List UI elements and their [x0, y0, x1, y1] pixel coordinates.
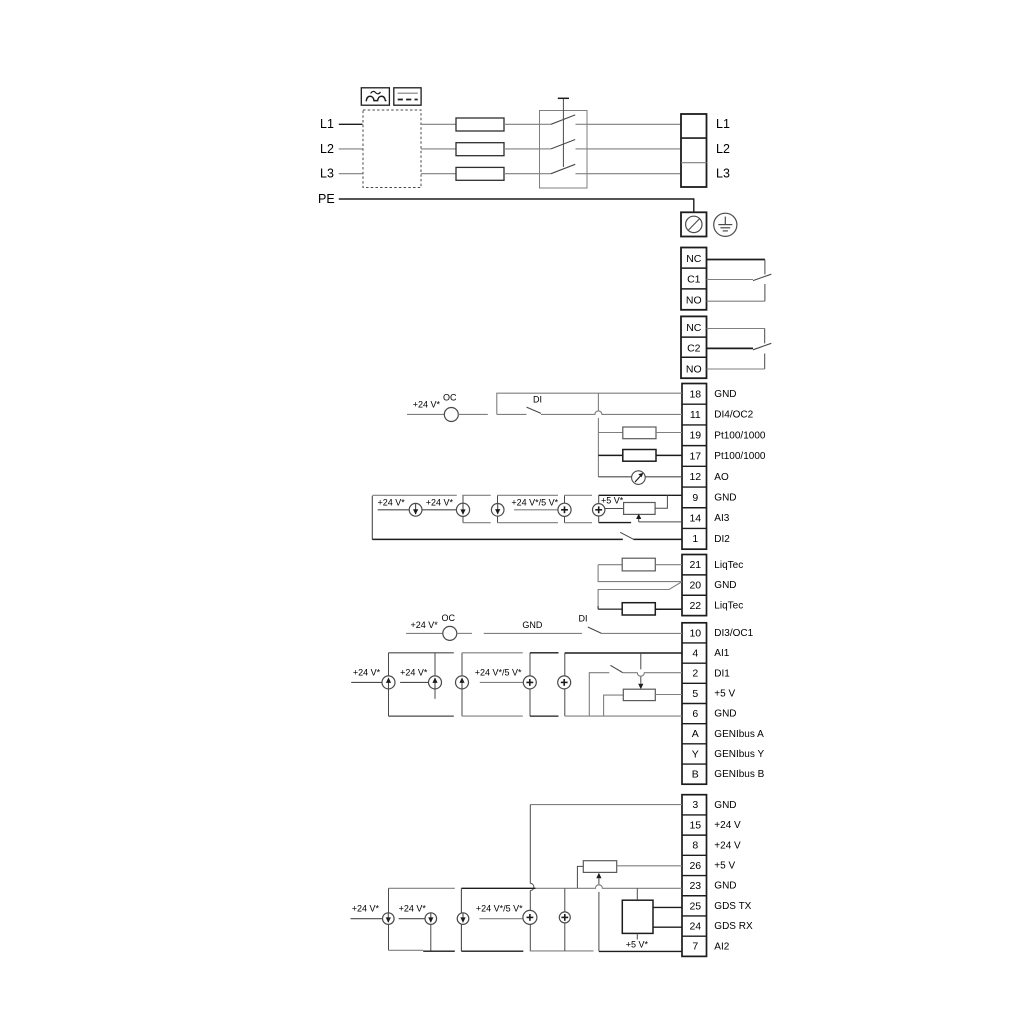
svg-text:DI3/OC1: DI3/OC1 [714, 628, 753, 639]
svg-text:3: 3 [692, 799, 698, 811]
svg-text:GND: GND [522, 620, 543, 630]
svg-text:AI3: AI3 [714, 513, 729, 524]
svg-text:26: 26 [689, 860, 701, 872]
svg-text:+24 V*: +24 V* [352, 904, 380, 914]
svg-text:+5 V: +5 V [714, 689, 735, 700]
svg-text:17: 17 [689, 450, 701, 462]
svg-text:Pt100/1000: Pt100/1000 [714, 430, 766, 441]
svg-text:AI2: AI2 [714, 941, 729, 952]
svg-text:7: 7 [692, 941, 698, 953]
svg-text:GND: GND [714, 709, 736, 720]
svg-text:2: 2 [692, 668, 698, 680]
svg-text:+24 V*: +24 V* [400, 668, 428, 678]
svg-text:25: 25 [689, 900, 701, 912]
svg-text:DI: DI [579, 613, 588, 623]
svg-text:GDS TX: GDS TX [714, 901, 751, 912]
svg-text:+5 V*: +5 V* [626, 940, 649, 950]
svg-text:C2: C2 [687, 342, 701, 354]
svg-text:+24 V: +24 V [714, 840, 741, 851]
svg-text:DI4/OC2: DI4/OC2 [714, 410, 753, 421]
svg-text:AI1: AI1 [714, 648, 729, 659]
svg-text:9: 9 [692, 492, 698, 504]
svg-text:18: 18 [689, 388, 701, 400]
svg-text:L1: L1 [320, 117, 334, 131]
svg-text:DI1: DI1 [714, 668, 730, 679]
svg-text:+24 V*/5 V*: +24 V*/5 V* [475, 668, 522, 678]
svg-text:NC: NC [686, 253, 702, 265]
svg-text:+5 V: +5 V [714, 861, 735, 872]
svg-text:L1: L1 [716, 117, 730, 131]
svg-text:20: 20 [689, 579, 701, 591]
svg-text:23: 23 [689, 880, 701, 892]
svg-text:+24 V*: +24 V* [378, 498, 406, 508]
svg-text:12: 12 [689, 471, 701, 483]
svg-text:1: 1 [692, 533, 698, 545]
svg-text:+24 V: +24 V [714, 820, 741, 831]
svg-text:L2: L2 [716, 142, 730, 156]
svg-text:LiqTec: LiqTec [714, 560, 743, 571]
svg-text:AO: AO [714, 472, 729, 483]
svg-text:Pt100/1000: Pt100/1000 [714, 451, 766, 462]
svg-text:+5 V*: +5 V* [601, 495, 624, 505]
svg-text:Y: Y [692, 748, 699, 760]
svg-text:GND: GND [714, 881, 736, 892]
svg-text:GENIbus B: GENIbus B [714, 769, 764, 780]
svg-text:GND: GND [714, 389, 736, 400]
svg-text:15: 15 [689, 819, 701, 831]
svg-text:L3: L3 [320, 167, 334, 181]
svg-text:GDS RX: GDS RX [714, 921, 753, 932]
svg-text:GENIbus Y: GENIbus Y [714, 749, 764, 760]
svg-text:11: 11 [690, 409, 701, 421]
svg-text:21: 21 [689, 559, 701, 571]
svg-text:+24 V*: +24 V* [426, 498, 454, 508]
svg-text:GND: GND [714, 493, 736, 504]
svg-text:+24 V*: +24 V* [413, 399, 441, 409]
svg-text:C1: C1 [687, 274, 701, 286]
svg-text:LiqTec: LiqTec [714, 601, 743, 612]
svg-text:L2: L2 [320, 142, 334, 156]
svg-text:OC: OC [443, 392, 457, 402]
svg-text:B: B [692, 769, 699, 781]
svg-text:DI: DI [533, 395, 542, 405]
svg-text:+24 V*: +24 V* [399, 904, 427, 914]
svg-text:NC: NC [686, 322, 702, 334]
svg-text:+24 V*/5 V*: +24 V*/5 V* [511, 498, 558, 508]
svg-text:+24 V*/5 V*: +24 V*/5 V* [476, 904, 523, 914]
svg-text:6: 6 [692, 708, 698, 720]
svg-text:4: 4 [692, 647, 698, 659]
svg-text:24: 24 [689, 920, 701, 932]
svg-text:OC: OC [442, 613, 456, 623]
svg-text:22: 22 [689, 600, 701, 612]
svg-text:DI2: DI2 [714, 534, 730, 545]
svg-text:GND: GND [714, 800, 736, 811]
svg-text:14: 14 [689, 513, 701, 525]
svg-text:10: 10 [689, 627, 701, 639]
svg-text:+24 V*: +24 V* [353, 668, 381, 678]
svg-text:NO: NO [686, 364, 702, 376]
svg-text:L3: L3 [716, 167, 730, 181]
svg-text:19: 19 [689, 430, 701, 442]
svg-text:GENIbus A: GENIbus A [714, 729, 764, 740]
svg-text:GND: GND [714, 580, 736, 591]
svg-text:5: 5 [692, 688, 698, 700]
svg-text:8: 8 [692, 840, 698, 852]
svg-text:A: A [692, 728, 699, 740]
svg-text:+24 V*: +24 V* [411, 620, 439, 630]
svg-text:NO: NO [686, 294, 702, 306]
svg-text:PE: PE [318, 192, 335, 206]
